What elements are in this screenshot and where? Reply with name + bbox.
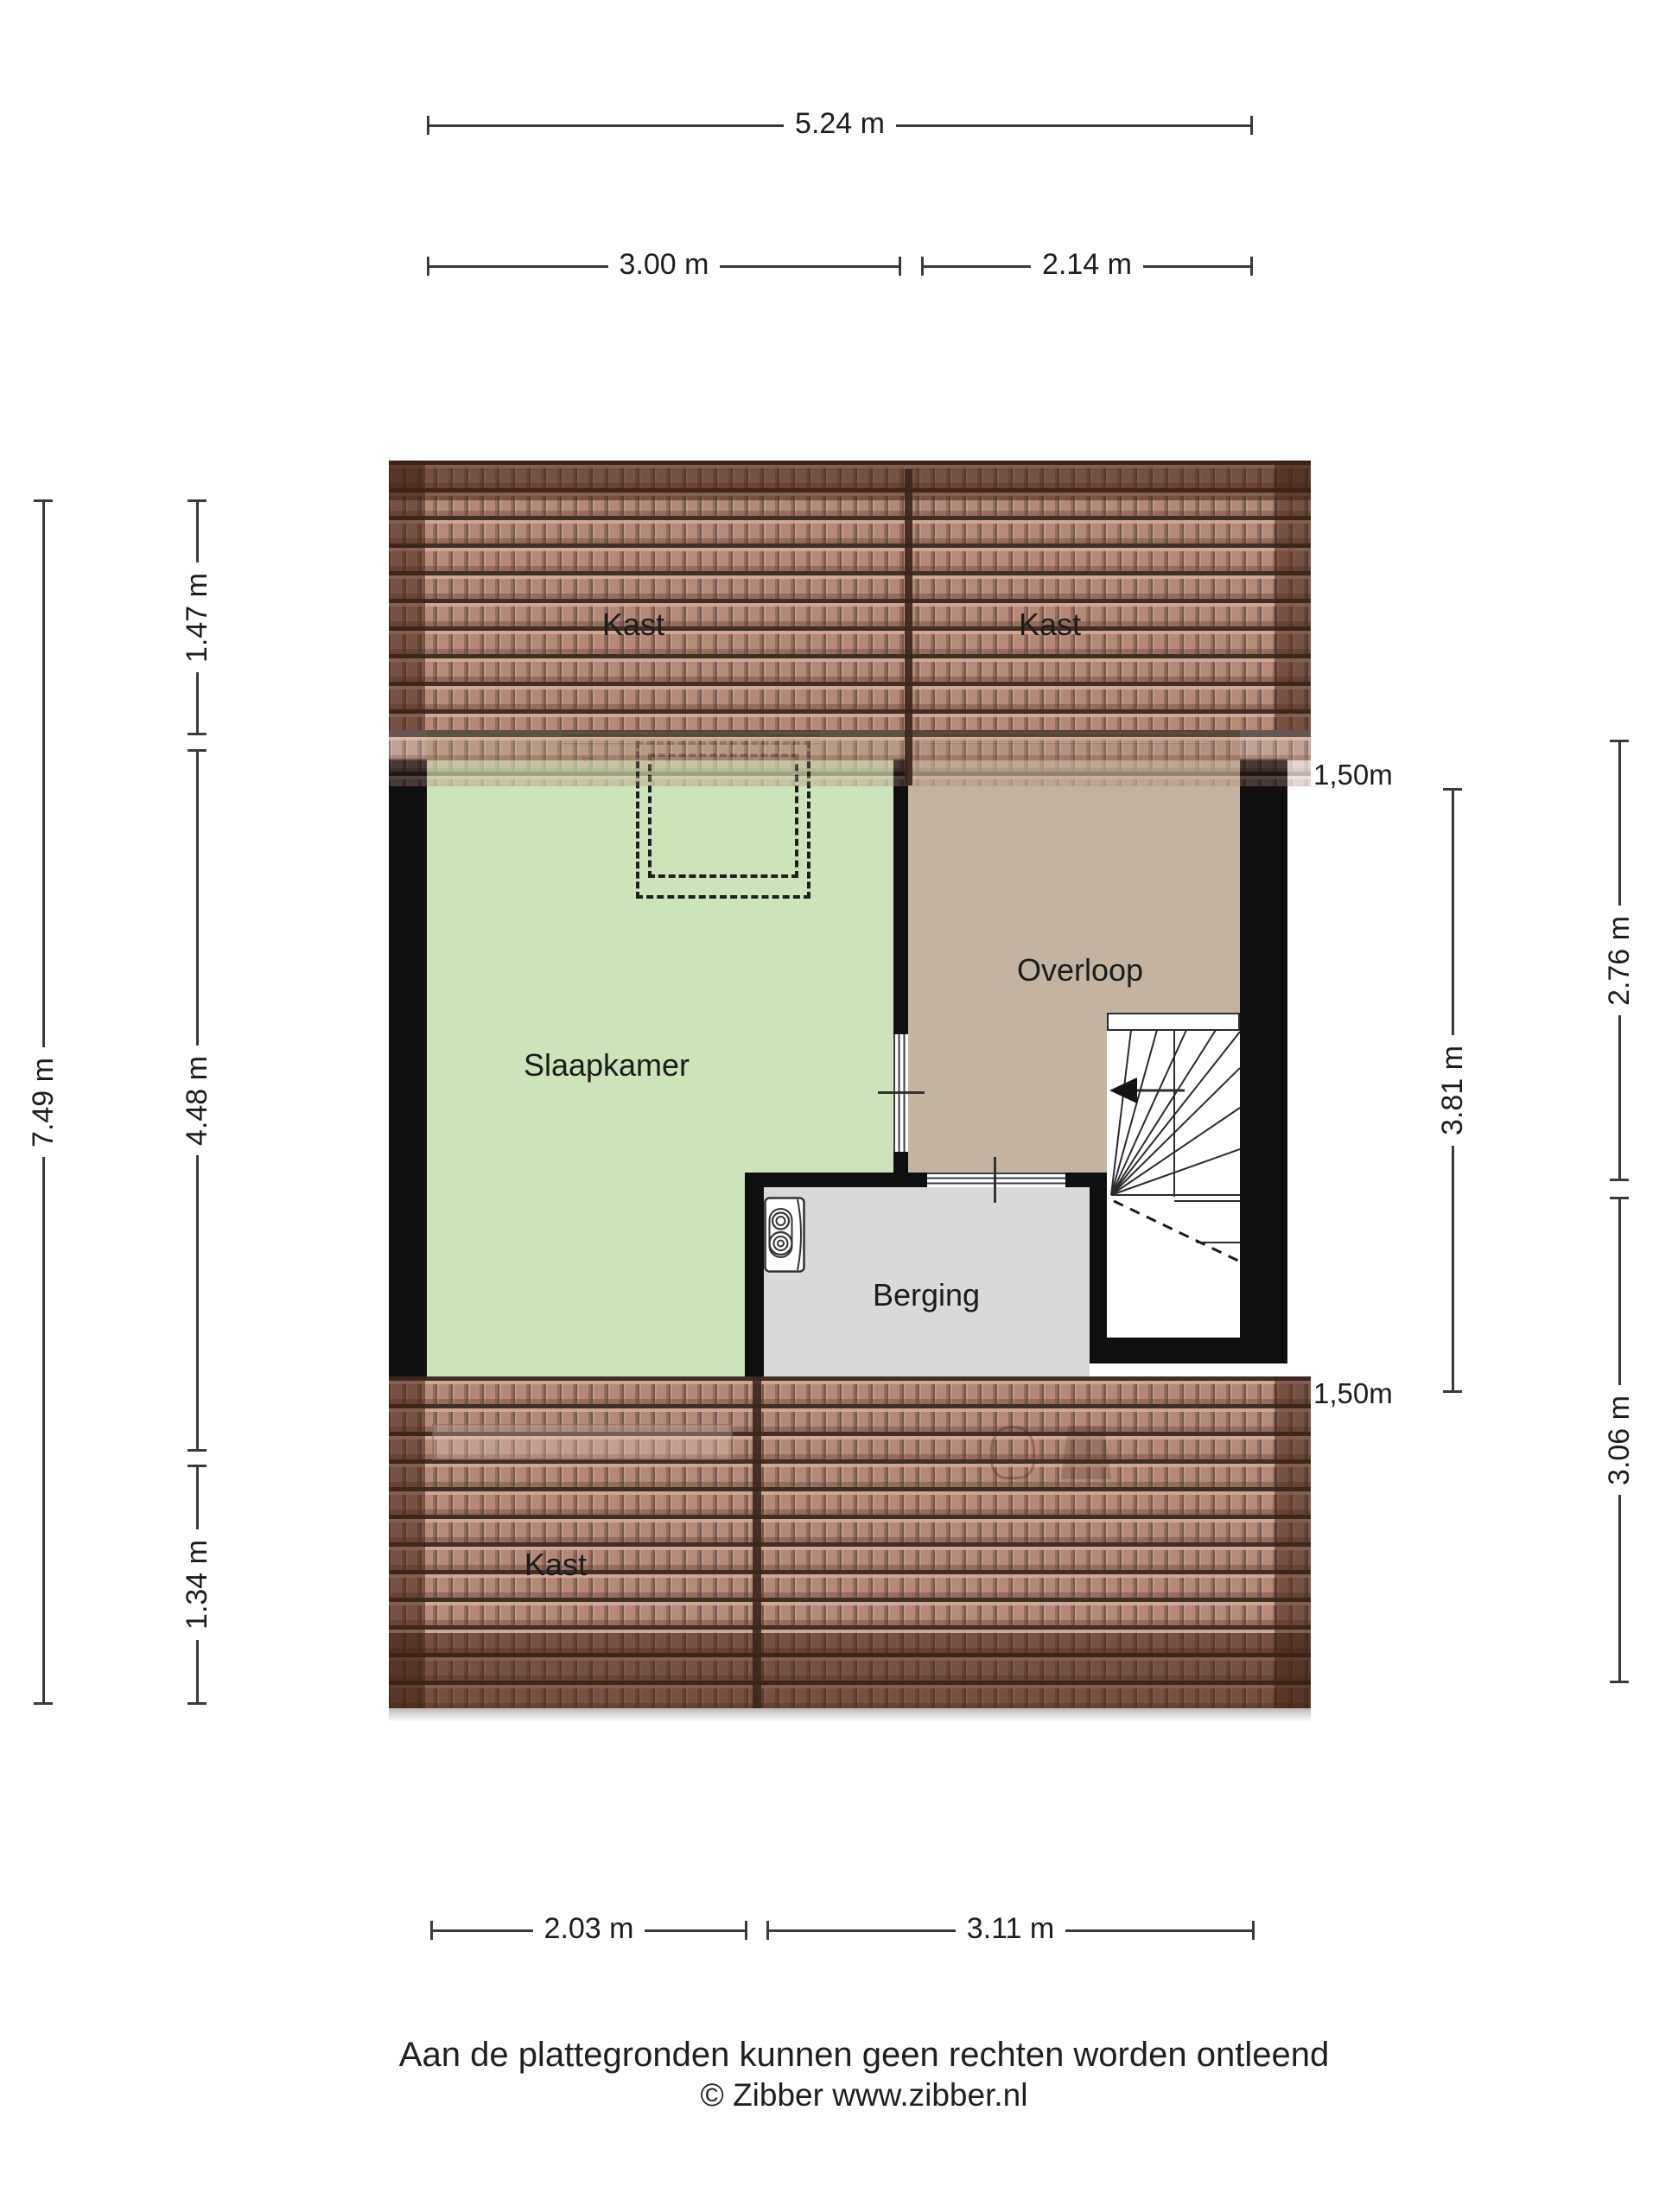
wall-exterior-left [389,759,427,1376]
dim-left-height-top: 1.47 m [186,499,208,735]
roof-bottom-eave [389,1633,1311,1708]
building-shadow [389,1708,1311,1722]
roof-bottom-edge-right [1274,1376,1311,1708]
knee-wall-label-top: 1,50m [1313,759,1393,791]
ghost-window-outline [432,1424,733,1460]
dim-bottom-width-left: 2.03 m [430,1919,747,1942]
dim-left-height-middle-label: 4.48 m [181,1046,214,1156]
dim-top-width-right-label: 2.14 m [1031,248,1143,282]
dim-bottom-width-right-label: 3.11 m [956,1912,1065,1946]
dim-right-height-stairwell-label: 3.81 m [1436,1035,1470,1146]
dim-right-height-lower-label: 3.06 m [1603,1385,1637,1496]
ghost-fixture-round [990,1426,1035,1479]
dim-left-height-top-label: 1.47 m [181,563,214,673]
roof-bottom-divider [753,1376,761,1708]
roof-top-fade-2 [389,760,1311,786]
dim-total-width-label: 5.24 m [784,107,896,141]
roof-top-edge-right [1274,461,1311,730]
roof-bottom-edge-left [389,1376,425,1708]
room-label-kast-top-left: Kast [602,607,664,643]
knee-wall-label-bottom: 1,50m [1313,1377,1393,1410]
dim-top-width-left: 3.00 m [427,255,901,277]
stairs [1107,1013,1240,1338]
wall-slaapkamer-overloop [893,759,908,1034]
dim-right-height-lower: 3.06 m [1608,1197,1630,1683]
dim-bottom-width-right: 3.11 m [766,1919,1255,1942]
boiler-icon [764,1197,807,1273]
roof-top-divider [905,469,912,785]
roof-top-fade-1 [389,730,1311,760]
footer-disclaimer: Aan de plattegronden kunnen geen rechten… [399,2036,1329,2075]
door-berging [927,1173,1065,1187]
dim-top-width-right: 2.14 m [921,255,1253,277]
dim-total-width: 5.24 m [427,114,1253,137]
dim-total-height-label: 7.49 m [27,1047,60,1158]
wall-stairwell-bottom [1090,1338,1287,1363]
roof-top-ridge [389,461,1311,500]
dim-left-height-bottom-label: 1.34 m [181,1529,214,1640]
footer-copyright: © Zibber www.zibber.nl [701,2077,1028,2113]
wall-slaapkamer-overloop-stub [893,1152,908,1173]
room-label-overloop: Overloop [1017,952,1143,988]
door-berging-tick [994,1157,996,1203]
room-label-slaapkamer: Slaapkamer [524,1047,690,1084]
room-label-kast-top-right: Kast [1019,607,1081,643]
dim-left-height-middle: 4.48 m [186,749,208,1452]
dim-total-height: 7.49 m [32,499,54,1705]
roof-top-edge-left [389,461,425,730]
roof-top [389,461,1311,730]
dim-top-width-left-label: 3.00 m [608,248,721,282]
wall-exterior-right [1240,759,1287,1363]
wall-berging-top [745,1173,927,1187]
building: ← → [389,461,1311,1724]
dim-right-height-upper-label: 2.76 m [1603,906,1637,1016]
dim-bottom-width-left-label: 2.03 m [533,1912,645,1946]
room-overloop-strip [908,1013,1107,1173]
floorplan-page: 5.24 m 3.00 m 2.14 m 7.49 m 1.47 m 4.48 … [0,0,1659,2212]
dim-right-height-stairwell: 3.81 m [1441,788,1464,1393]
wall-berging-left [745,1173,764,1376]
dim-right-height-upper: 2.76 m [1608,740,1630,1181]
room-label-berging: Berging [873,1277,980,1313]
wall-stairwell-left [1090,1173,1107,1363]
ghost-fixture-trapezoid [1061,1426,1111,1479]
room-label-kast-bottom: Kast [524,1547,587,1583]
door-slaapkamer-leaf [878,1091,925,1094]
dim-left-height-bottom: 1.34 m [186,1465,208,1705]
